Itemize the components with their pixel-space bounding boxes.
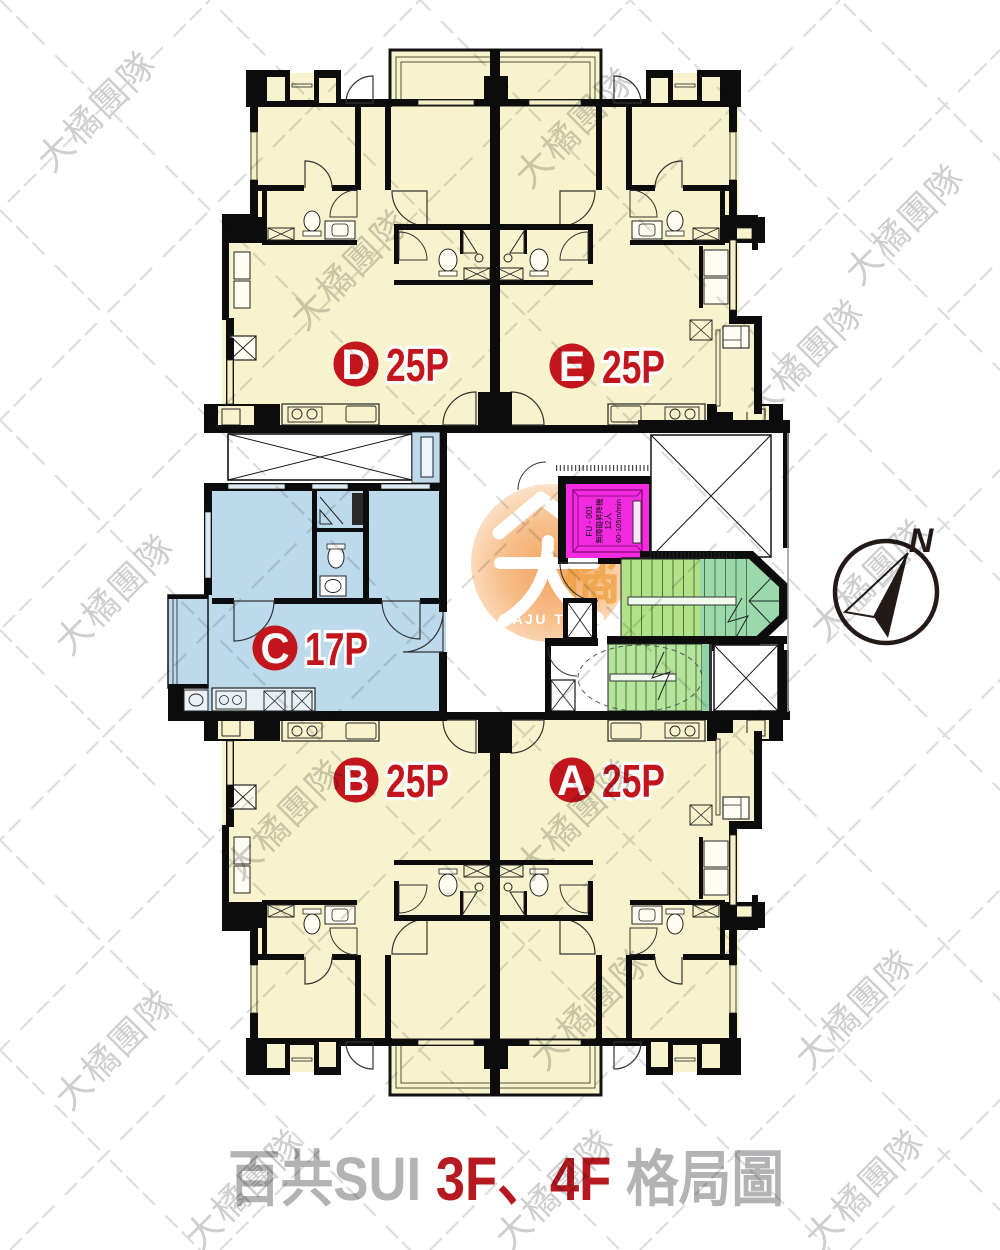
svg-text:E: E: [559, 343, 585, 391]
svg-text:C: C: [261, 625, 290, 673]
svg-text:百共SUI 3F、4F 格局圖: 百共SUI 3F、4F 格局圖: [228, 1145, 784, 1213]
svg-text:FU - 001: FU - 001: [585, 505, 594, 537]
svg-text:12人: 12人: [604, 513, 613, 530]
svg-text:60-105m/min: 60-105m/min: [614, 499, 623, 543]
svg-text:25P: 25P: [386, 339, 449, 391]
svg-text:17P: 17P: [305, 623, 368, 675]
svg-text:25P: 25P: [386, 755, 449, 807]
svg-text:25P: 25P: [602, 341, 665, 393]
svg-text:無障礙昇降機: 無障礙昇降機: [594, 498, 604, 543]
